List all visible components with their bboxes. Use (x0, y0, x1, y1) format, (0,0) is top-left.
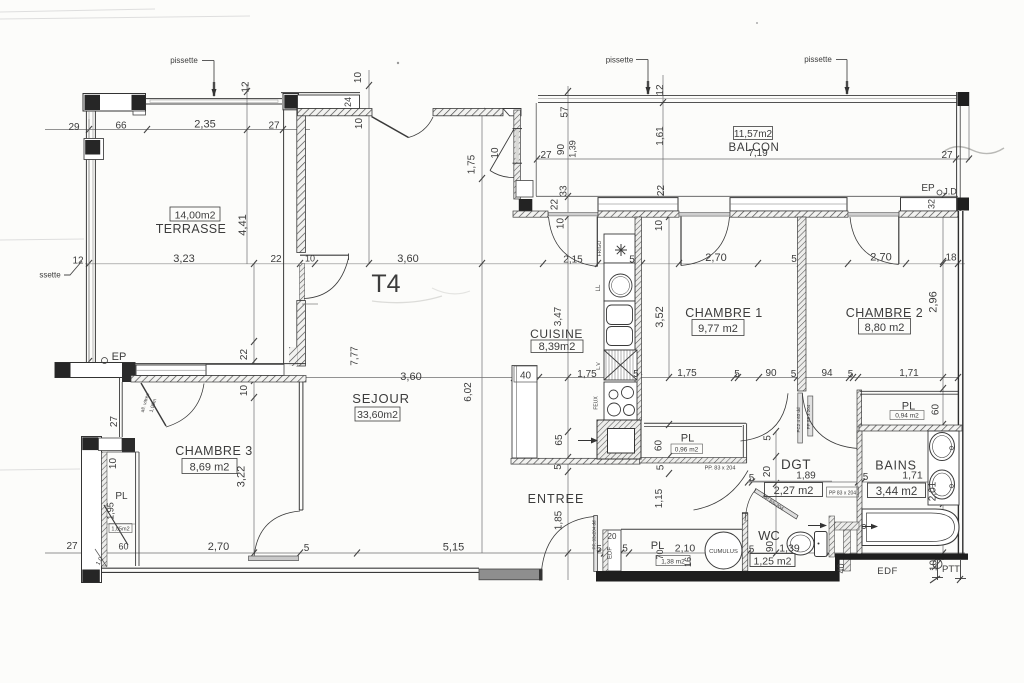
svg-text:5,15: 5,15 (443, 542, 464, 554)
svg-text:2,70: 2,70 (208, 541, 229, 553)
svg-text:27: 27 (109, 416, 120, 428)
svg-text:PP 83 x 204: PP 83 x 204 (829, 491, 856, 497)
svg-text:2,01: 2,01 (928, 481, 939, 501)
svg-text:FRIGO: FRIGO (597, 240, 603, 256)
svg-text:1,39: 1,39 (568, 140, 578, 158)
svg-text:3,60: 3,60 (397, 253, 418, 265)
svg-text:12: 12 (655, 84, 666, 96)
svg-text:18: 18 (945, 253, 957, 264)
svg-text:5: 5 (791, 254, 797, 265)
svg-text:0,94 m2: 0,94 m2 (895, 413, 919, 420)
svg-text:66: 66 (115, 121, 127, 132)
svg-text:EDF: EDF (877, 566, 898, 577)
svg-text:33: 33 (559, 185, 570, 197)
svg-text:CHAMBRE 1: CHAMBRE 1 (685, 306, 762, 320)
svg-text:7,77: 7,77 (350, 346, 361, 366)
svg-text:EP: EP (112, 351, 127, 363)
svg-text:1,71: 1,71 (899, 368, 919, 379)
svg-text:16: 16 (683, 557, 693, 567)
svg-text:5: 5 (848, 369, 854, 380)
svg-text:1,05m2: 1,05m2 (111, 527, 129, 533)
svg-text:5: 5 (656, 464, 667, 470)
svg-text:5: 5 (763, 435, 774, 441)
svg-text:3,47: 3,47 (553, 306, 564, 326)
svg-text:10: 10 (353, 72, 364, 84)
svg-text:PTT: PTT (942, 564, 960, 575)
svg-text:2,70: 2,70 (870, 252, 891, 264)
svg-text:33,60m2: 33,60m2 (357, 409, 398, 421)
svg-text:10: 10 (354, 118, 365, 130)
svg-text:14,00m2: 14,00m2 (175, 209, 216, 221)
svg-text:10: 10 (490, 147, 501, 159)
svg-text:22: 22 (656, 185, 667, 197)
svg-text:1,85: 1,85 (554, 510, 565, 530)
svg-text:WC: WC (758, 528, 780, 543)
svg-text:1,39: 1,39 (779, 543, 800, 555)
svg-text:FEUX: FEUX (594, 396, 600, 410)
svg-text:5: 5 (596, 544, 602, 555)
svg-text:8,39m2: 8,39m2 (539, 341, 576, 353)
svg-text:60: 60 (118, 542, 128, 552)
svg-text:5: 5 (633, 369, 639, 380)
svg-text:27: 27 (941, 150, 953, 161)
svg-text:40: 40 (836, 563, 846, 573)
svg-text:27: 27 (66, 541, 78, 552)
svg-text:5: 5 (749, 473, 755, 484)
svg-text:0,96 m2: 0,96 m2 (675, 447, 699, 454)
svg-text:2,35: 2,35 (194, 119, 215, 131)
svg-text:1,75: 1,75 (577, 369, 597, 380)
svg-text:1,95: 1,95 (106, 502, 116, 520)
svg-text:8,80 m2: 8,80 m2 (865, 322, 905, 334)
svg-text:60: 60 (931, 404, 942, 416)
svg-text:12: 12 (72, 256, 84, 267)
svg-text:T4: T4 (371, 270, 400, 298)
svg-text:CUISINE: CUISINE (530, 327, 583, 341)
svg-text:12: 12 (241, 81, 252, 93)
svg-text:3,22: 3,22 (236, 466, 248, 487)
svg-text:5: 5 (749, 545, 755, 556)
svg-text:9,77 m2: 9,77 m2 (698, 323, 738, 335)
svg-text:11,57m2: 11,57m2 (734, 129, 773, 140)
svg-text:1,61: 1,61 (655, 126, 666, 146)
svg-text:1,25 m2: 1,25 m2 (754, 555, 792, 567)
svg-text:CUMULUS: CUMULUS (709, 549, 738, 555)
svg-text:3,44 m2: 3,44 m2 (876, 486, 918, 498)
svg-text:pissette: pissette (804, 55, 832, 64)
svg-text:PP. 83 x 204: PP. 83 x 204 (705, 466, 736, 472)
svg-text:2,70: 2,70 (705, 252, 726, 264)
svg-text:90: 90 (765, 368, 777, 379)
svg-text:SEJOUR: SEJOUR (352, 391, 410, 406)
svg-text:PL: PL (681, 433, 694, 445)
svg-text:24: 24 (343, 97, 353, 107)
svg-text:7,19: 7,19 (748, 148, 768, 159)
svg-text:10: 10 (108, 458, 119, 470)
svg-text:10: 10 (929, 560, 940, 572)
svg-text:2,10: 2,10 (675, 543, 696, 555)
svg-text:1,89: 1,89 (796, 471, 816, 482)
svg-text:PL: PL (115, 491, 128, 502)
svg-text:2,27 m2: 2,27 m2 (774, 485, 814, 497)
svg-text:ENTREE: ENTREE (528, 492, 585, 506)
svg-text:pissette: pissette (606, 56, 634, 65)
svg-text:3,60: 3,60 (400, 371, 421, 383)
svg-text:27: 27 (268, 121, 280, 132)
svg-text:EP: EP (921, 183, 935, 194)
svg-text:1,71: 1,71 (902, 470, 923, 482)
svg-text:EDF: EDF (608, 547, 614, 559)
svg-text:70: 70 (655, 549, 665, 559)
svg-text:J.D: J.D (943, 187, 957, 197)
svg-text:20: 20 (762, 466, 773, 478)
svg-text:32: 32 (927, 199, 937, 209)
svg-text:1,75: 1,75 (467, 154, 478, 174)
svg-text:2,96: 2,96 (928, 291, 940, 312)
svg-text:5: 5 (622, 544, 628, 555)
svg-text:PC2 4 63 dd: PC2 4 63 dd (796, 407, 801, 433)
svg-text:10: 10 (556, 218, 567, 230)
svg-text:22: 22 (270, 254, 282, 265)
svg-text:L.V: L.V (596, 362, 602, 370)
svg-text:5: 5 (791, 369, 797, 380)
svg-text:LL: LL (596, 284, 602, 291)
svg-text:6,02: 6,02 (463, 382, 474, 402)
svg-text:29: 29 (68, 122, 80, 133)
svg-text:3,23: 3,23 (173, 253, 194, 265)
svg-text:PP 83 x 204: PP 83 x 204 (806, 404, 811, 429)
svg-text:10: 10 (305, 254, 315, 264)
svg-text:22: 22 (239, 349, 250, 361)
svg-text:8,69 m2: 8,69 m2 (190, 461, 230, 473)
svg-text:65: 65 (554, 434, 565, 446)
svg-text:1,75: 1,75 (677, 368, 697, 379)
svg-text:20: 20 (608, 532, 617, 541)
svg-text:5: 5 (734, 369, 740, 380)
svg-text:90: 90 (556, 144, 567, 156)
svg-text:CHAMBRE 3: CHAMBRE 3 (175, 444, 252, 458)
svg-text:pissette: pissette (170, 56, 198, 65)
svg-text:5: 5 (629, 255, 635, 266)
svg-text:PP. 93x204 dd: PP. 93x204 dd (592, 520, 597, 549)
svg-text:22: 22 (550, 199, 561, 211)
svg-text:ssette: ssette (39, 271, 61, 280)
svg-text:CHAMBRE 2: CHAMBRE 2 (846, 306, 923, 320)
svg-text:5: 5 (553, 464, 564, 470)
svg-text:4,41: 4,41 (237, 214, 249, 235)
svg-text:5: 5 (863, 472, 869, 483)
svg-text:10: 10 (654, 220, 665, 232)
svg-text:60: 60 (654, 440, 665, 452)
svg-text:10: 10 (239, 385, 250, 397)
svg-text:TERRASSE: TERRASSE (156, 222, 227, 236)
svg-text:5: 5 (304, 543, 310, 554)
svg-text:94: 94 (821, 368, 833, 379)
svg-text:3,52: 3,52 (654, 306, 666, 327)
svg-text:90: 90 (765, 541, 776, 553)
svg-text:2,15: 2,15 (563, 255, 583, 266)
svg-text:1,15: 1,15 (654, 488, 665, 508)
svg-text:57: 57 (560, 106, 571, 118)
svg-text:27: 27 (540, 150, 552, 161)
svg-text:40: 40 (520, 371, 532, 382)
